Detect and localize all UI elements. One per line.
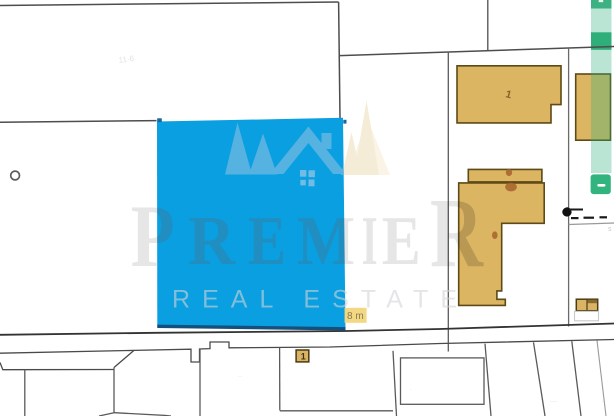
svg-text:I: I (362, 203, 378, 280)
svg-text:....: .... (550, 397, 558, 404)
svg-text:s: s (608, 226, 612, 233)
svg-text:8 m: 8 m (347, 311, 364, 322)
svg-text:..: .. (238, 372, 242, 379)
svg-text:.: . (410, 385, 412, 392)
svg-text:R: R (188, 203, 236, 280)
svg-text:1: 1 (301, 351, 306, 361)
svg-text:..: .. (602, 397, 606, 404)
svg-text:E: E (248, 203, 286, 280)
svg-text:REAL ESTATE: REAL ESTATE (172, 286, 467, 314)
svg-text:E: E (382, 203, 421, 280)
